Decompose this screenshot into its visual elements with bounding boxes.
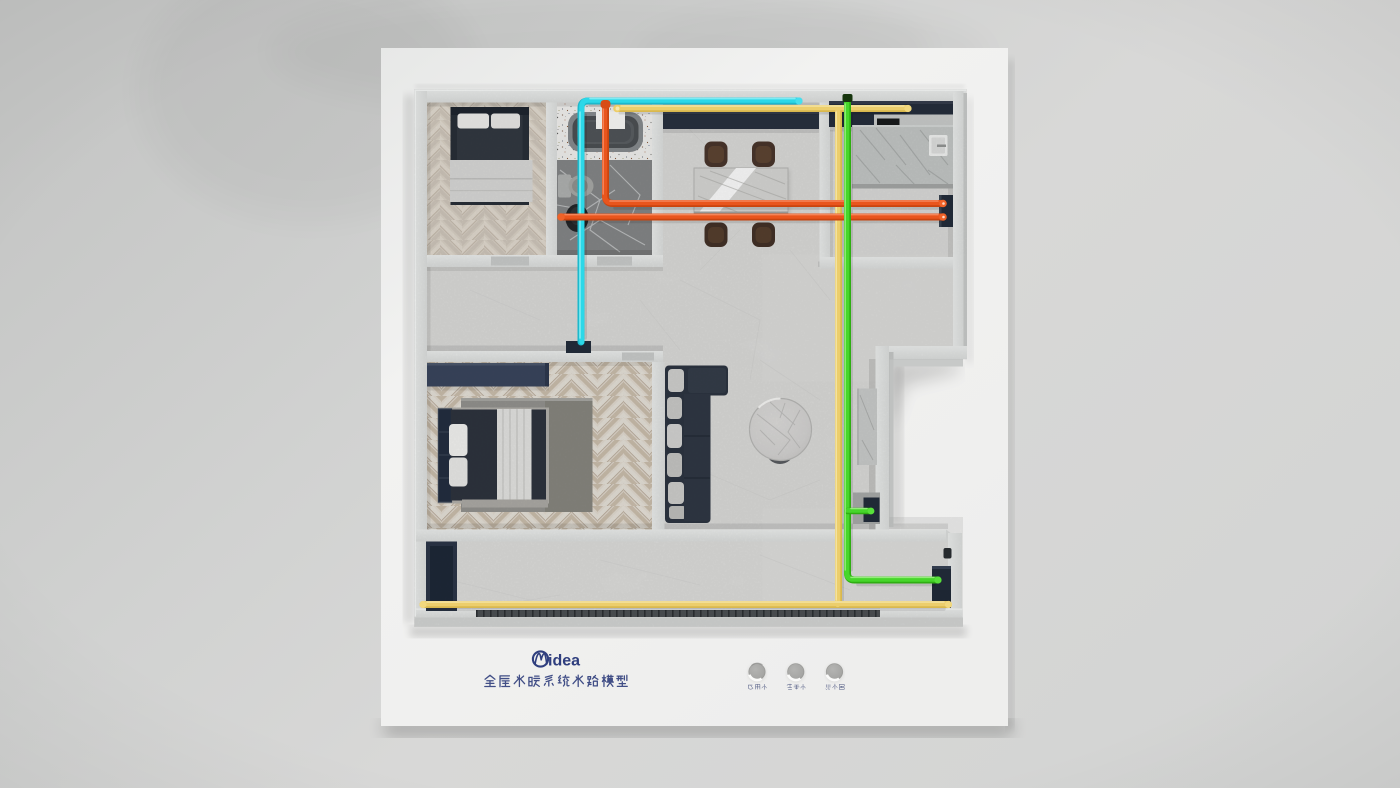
- svg-text:idea: idea: [548, 653, 580, 670]
